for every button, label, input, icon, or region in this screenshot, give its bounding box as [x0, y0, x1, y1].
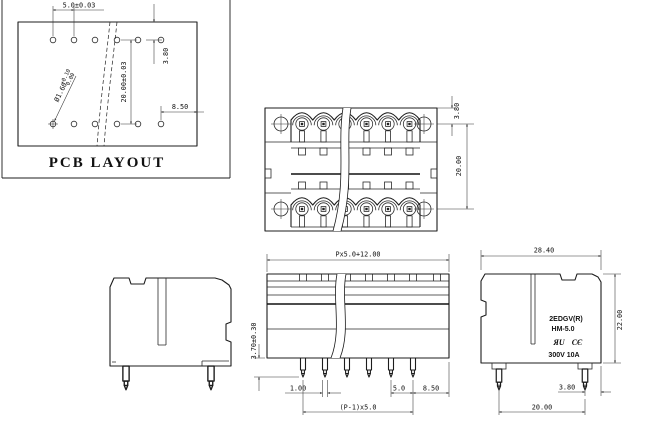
- top-view: 3.80 20.00: [265, 96, 474, 231]
- plug-slot: [531, 274, 535, 344]
- model-marking: 2EDGV(R): [549, 316, 582, 323]
- svg-text:28.40: 28.40: [534, 247, 554, 255]
- dim-hole-diameter: Ø1.60 +0.10 0.00: [52, 68, 77, 121]
- body-outline: [110, 278, 231, 366]
- terminal-screw: [379, 201, 398, 227]
- drawing-sheet: 5.0±0.03 3.80 20.00±0.03 8.50 Ø1.60 +0.1…: [0, 0, 650, 438]
- mounting-screw-crosshair: [271, 114, 291, 134]
- solder-pin: [411, 358, 416, 377]
- svg-text:3.80: 3.80: [453, 103, 461, 119]
- vent-slots: [300, 275, 441, 282]
- dim-top-edge-to-row: 3.80: [437, 96, 474, 136]
- side-latch-left: [265, 169, 271, 178]
- dim-row-to-row: 20.00: [437, 124, 474, 209]
- solder-pin: [123, 366, 129, 390]
- solder-pin: [301, 358, 306, 377]
- svg-text:20.00±0.03: 20.00±0.03: [120, 62, 128, 103]
- svg-text:8.50: 8.50: [423, 385, 439, 393]
- terminal-screw: [400, 201, 419, 227]
- plug-slot: [158, 278, 166, 345]
- dim-pin-length: 3.70±0.30: [250, 323, 299, 391]
- dim-depth: 28.40: [481, 247, 601, 271]
- mounting-screw-crosshair: [271, 199, 291, 219]
- dim-overall-width: Px5.0+12.00: [267, 251, 449, 273]
- side-view-left: [110, 278, 231, 390]
- keying-tabs: [299, 148, 414, 189]
- hole-crosshair-icon: [48, 119, 58, 129]
- svg-text:3.80: 3.80: [559, 384, 575, 392]
- dim-end-margin: 8.50: [413, 362, 449, 397]
- dim-pin-width: 1.00: [285, 380, 341, 397]
- svg-text:3.70±0.30: 3.70±0.30: [250, 323, 258, 360]
- solder-pin: [208, 366, 214, 390]
- svg-text:22.00: 22.00: [616, 310, 624, 330]
- front-view: Px5.0+12.00 3.70±0.30 1.00 5.0 8.50: [250, 251, 449, 416]
- series-marking: HM-5.0: [552, 326, 575, 333]
- terminal-screw: [357, 116, 376, 142]
- row1-housing: [291, 113, 420, 142]
- solder-pin: [323, 358, 328, 377]
- rating-marking: 300V 10A: [548, 352, 579, 359]
- svg-text:20.00: 20.00: [455, 156, 463, 176]
- dim-pitch: 5.0: [391, 380, 413, 397]
- body-outline: [481, 274, 601, 363]
- pcb-layout-view: 5.0±0.03 3.80 20.00±0.03 8.50 Ø1.60 +0.1…: [2, 0, 230, 178]
- terminal-block-technical-drawing: 5.0±0.03 3.80 20.00±0.03 8.50 Ø1.60 +0.1…: [0, 0, 650, 438]
- sheet-frame: [2, 0, 230, 178]
- dim-edge-to-row: 3.80: [146, 4, 170, 64]
- pin-boss: [492, 363, 506, 369]
- svg-text:(P-1)x5.0: (P-1)x5.0: [340, 404, 377, 412]
- svg-text:Px5.0+12.00: Px5.0+12.00: [335, 251, 380, 259]
- dim-height: 22.00: [603, 274, 624, 363]
- svg-text:1.00: 1.00: [290, 385, 306, 393]
- terminal-screw: [314, 116, 333, 142]
- ul-recognized-icon: ЯU: [552, 338, 566, 347]
- row2-housing: [291, 198, 420, 227]
- break-blank: [333, 108, 351, 231]
- ce-mark-icon: CЄ: [572, 338, 583, 347]
- foot-ledge: [112, 361, 229, 366]
- svg-text:3.80: 3.80: [162, 48, 170, 64]
- terminal-screw: [314, 201, 333, 227]
- svg-text:8.50: 8.50: [172, 103, 188, 111]
- terminal-screw: [400, 116, 419, 142]
- dim-pin-to-edge: 3.80: [558, 366, 611, 396]
- svg-text:5.0±0.03: 5.0±0.03: [63, 2, 96, 10]
- svg-text:20.00: 20.00: [532, 404, 552, 412]
- terminal-screw: [357, 201, 376, 227]
- svg-text:5.0: 5.0: [393, 385, 405, 393]
- terminal-screw: [379, 116, 398, 142]
- pcb-board-outline: [18, 22, 197, 146]
- solder-pin: [345, 358, 350, 377]
- terminal-screw: [293, 116, 312, 142]
- solder-pin: [367, 358, 372, 377]
- terminal-screw: [293, 201, 312, 227]
- solder-pin: [389, 358, 394, 377]
- side-latch-right: [431, 169, 437, 178]
- dim-row-spacing: 20.00±0.03: [120, 40, 137, 124]
- side-view-right: 2EDGV(R) HM-5.0 ЯU CЄ 300V 10A 28.40 22.…: [481, 247, 624, 416]
- dim-hole-pitch: 5.0±0.03: [53, 2, 104, 37]
- pcb-layout-title: PCB LAYOUT: [49, 155, 166, 171]
- pin-boss: [578, 363, 592, 369]
